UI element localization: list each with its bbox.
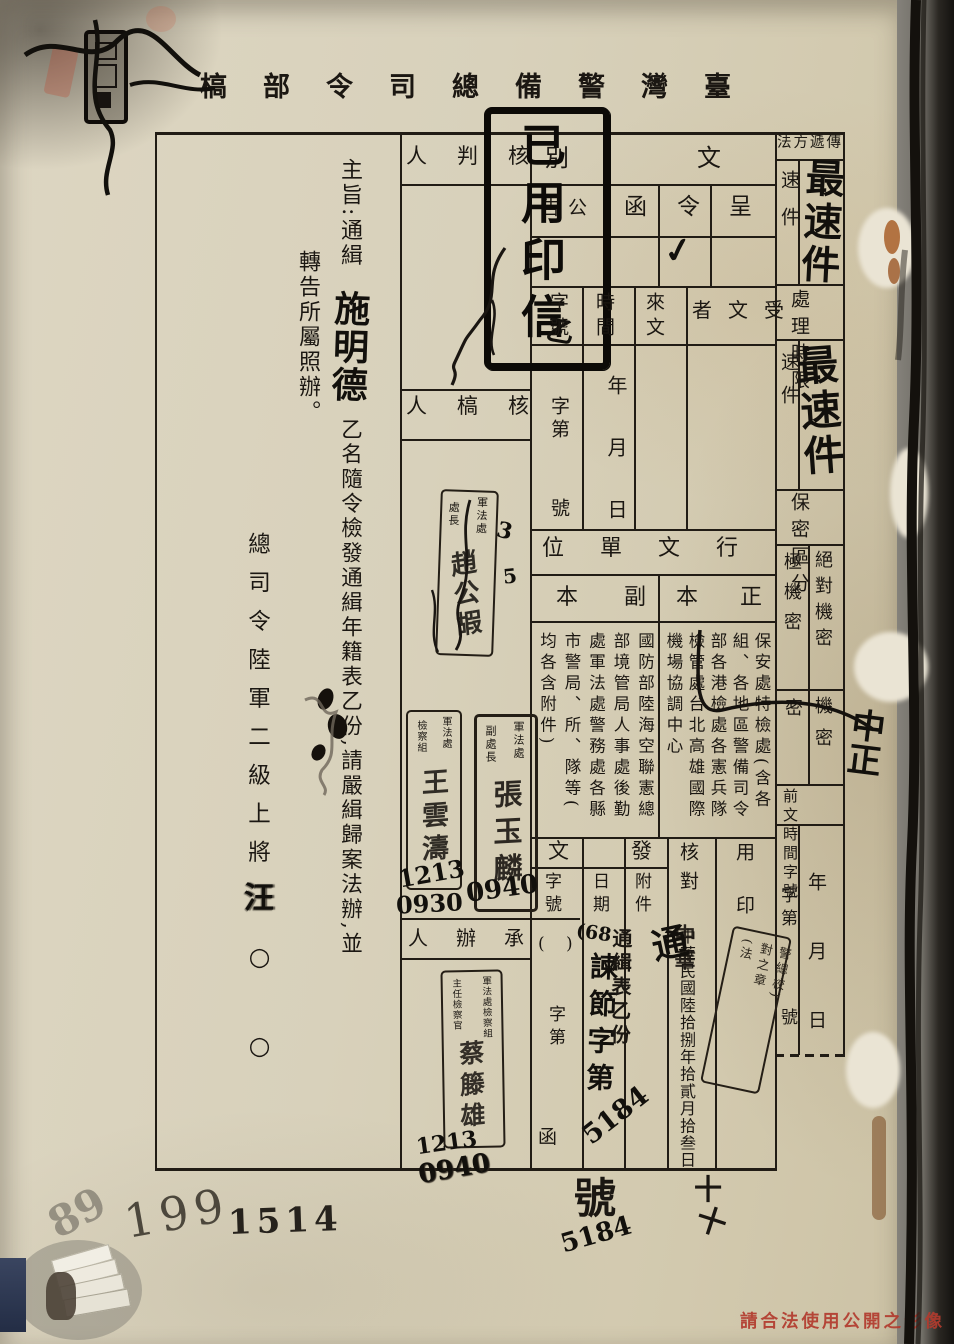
- handwriting-and-edge-overlay: [0, 0, 954, 1344]
- scanned-document-page: 槁部令司總備警灣臺 別文 呈 令 函 告公 ✓ 已用印信 乙 者文受 來文 時間…: [0, 0, 954, 1344]
